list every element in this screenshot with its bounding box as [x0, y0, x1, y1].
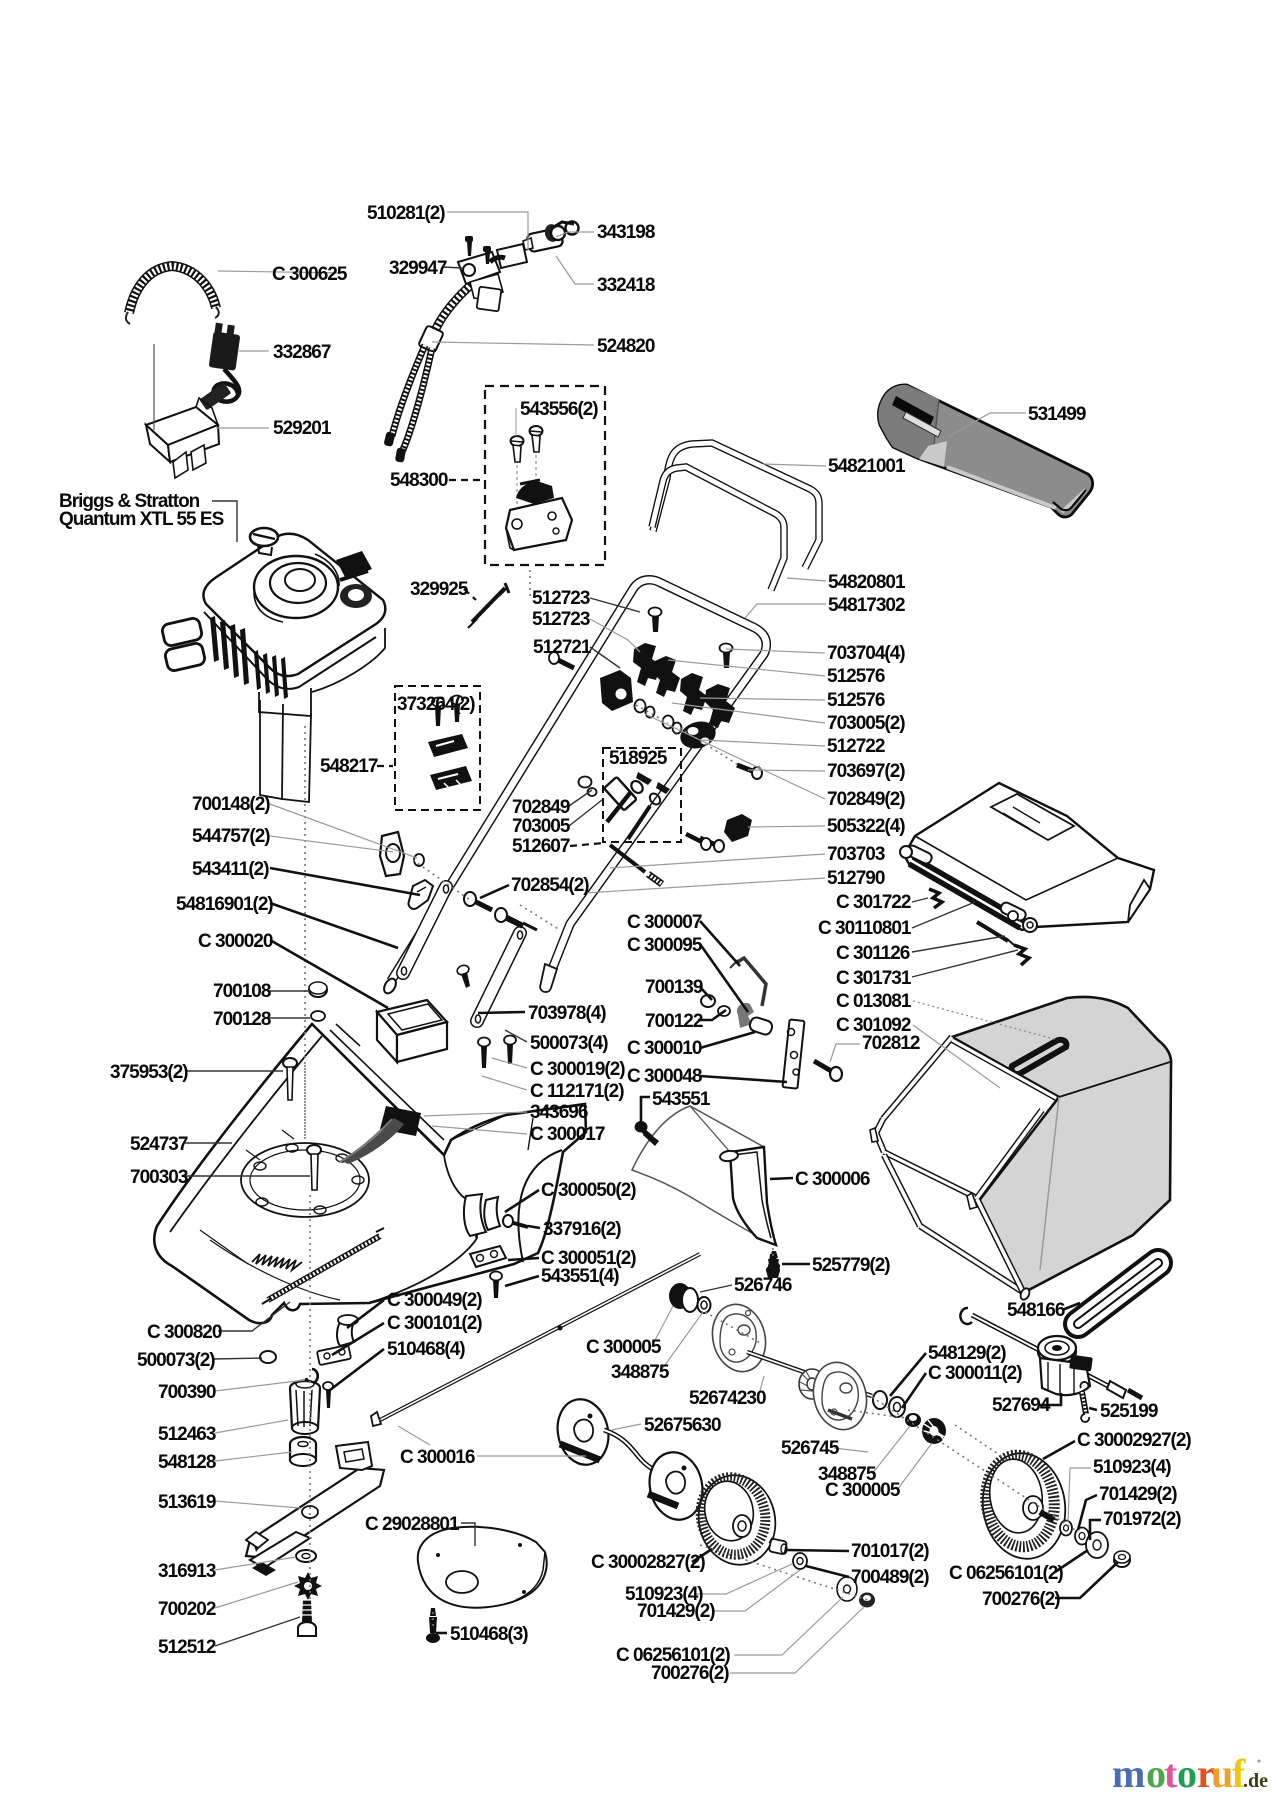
svg-text:524737: 524737 — [130, 1134, 188, 1155]
svg-text:Quantum XTL 55 ES: Quantum XTL 55 ES — [59, 509, 224, 530]
svg-text:o: o — [1146, 1751, 1166, 1796]
svg-text:700390: 700390 — [158, 1382, 216, 1403]
svg-text:375953(2): 375953(2) — [110, 1062, 188, 1083]
svg-text:513619: 513619 — [158, 1492, 216, 1513]
svg-text:548300: 548300 — [390, 470, 448, 491]
svg-text:C 300048: C 300048 — [627, 1066, 702, 1087]
svg-text:700122: 700122 — [645, 1011, 703, 1032]
svg-text:C 300005: C 300005 — [825, 1480, 901, 1501]
svg-text:702854(2): 702854(2) — [511, 875, 589, 896]
svg-text:512607: 512607 — [512, 836, 570, 857]
svg-text:C 013081: C 013081 — [836, 991, 912, 1012]
svg-text:510281(2): 510281(2) — [367, 203, 445, 224]
svg-text:512722: 512722 — [827, 736, 885, 757]
svg-text:510468(4): 510468(4) — [387, 1339, 465, 1360]
svg-text:700303: 700303 — [130, 1167, 188, 1188]
svg-text:C 30002927(2): C 30002927(2) — [1077, 1430, 1191, 1451]
svg-text:C 300049(2): C 300049(2) — [387, 1290, 482, 1311]
svg-text:701972(2): 701972(2) — [1103, 1509, 1181, 1530]
svg-text:703978(4): 703978(4) — [528, 1003, 606, 1024]
svg-text:700489(2): 700489(2) — [851, 1567, 929, 1588]
svg-text:700276(2): 700276(2) — [651, 1663, 729, 1684]
svg-text:702849: 702849 — [512, 797, 570, 818]
svg-text:548166: 548166 — [1007, 1300, 1065, 1321]
svg-text:525199: 525199 — [1100, 1401, 1158, 1422]
svg-text:C 300005: C 300005 — [586, 1337, 662, 1358]
svg-text:C 300007: C 300007 — [627, 912, 702, 933]
svg-text:548128: 548128 — [158, 1452, 216, 1473]
svg-text:C 300101(2): C 300101(2) — [387, 1313, 482, 1334]
svg-text:700276(2): 700276(2) — [982, 1589, 1060, 1610]
svg-text:t: t — [1164, 1751, 1178, 1796]
svg-text:m: m — [1112, 1751, 1145, 1796]
svg-text:512576: 512576 — [827, 666, 885, 687]
svg-text:701429(2): 701429(2) — [637, 1601, 715, 1622]
svg-text:C 300095: C 300095 — [627, 935, 703, 956]
svg-text:C 300006: C 300006 — [795, 1169, 870, 1190]
svg-text:510923(4): 510923(4) — [1093, 1457, 1171, 1478]
svg-text:544757(2): 544757(2) — [192, 826, 270, 847]
svg-text:702812: 702812 — [862, 1033, 920, 1054]
svg-text:700202: 700202 — [158, 1599, 216, 1620]
svg-text:348875: 348875 — [611, 1362, 670, 1383]
svg-text:329947: 329947 — [389, 258, 447, 279]
svg-text:54821001: 54821001 — [828, 456, 906, 477]
svg-text:329925: 329925 — [410, 579, 469, 600]
svg-text:700139: 700139 — [645, 977, 703, 998]
svg-text:703697(2): 703697(2) — [827, 761, 905, 782]
svg-text:373264(2): 373264(2) — [397, 694, 475, 715]
svg-text:54817302: 54817302 — [828, 595, 905, 616]
svg-text:343198: 343198 — [597, 222, 655, 243]
svg-text:C 30002827(2): C 30002827(2) — [591, 1552, 705, 1573]
svg-text:343696: 343696 — [530, 1102, 588, 1123]
svg-text:700128: 700128 — [213, 1009, 271, 1030]
svg-text:337916(2): 337916(2) — [543, 1219, 621, 1240]
svg-text:505322(4): 505322(4) — [827, 816, 905, 837]
svg-text:700108: 700108 — [213, 981, 271, 1002]
svg-text:.de: .de — [1243, 1770, 1268, 1792]
svg-text:548129(2): 548129(2) — [928, 1343, 1006, 1364]
svg-text:52674230: 52674230 — [689, 1388, 766, 1409]
svg-text:C 06256101(2): C 06256101(2) — [949, 1563, 1063, 1584]
svg-text:518925: 518925 — [609, 748, 668, 769]
svg-text:512721: 512721 — [533, 637, 592, 658]
svg-text:500073(2): 500073(2) — [137, 1350, 215, 1371]
svg-text:512723: 512723 — [532, 609, 590, 630]
svg-text:701017(2): 701017(2) — [851, 1541, 929, 1562]
svg-text:543556(2): 543556(2) — [520, 399, 598, 420]
svg-text:C 112171(2): C 112171(2) — [530, 1081, 624, 1102]
svg-text:512790: 512790 — [827, 868, 885, 889]
svg-text:C 300050(2): C 300050(2) — [541, 1180, 636, 1201]
svg-text:C 301731: C 301731 — [836, 968, 912, 989]
svg-text:703005: 703005 — [512, 816, 571, 837]
svg-text:C 29028801: C 29028801 — [365, 1514, 460, 1535]
svg-text:512723: 512723 — [532, 588, 590, 609]
svg-text:701429(2): 701429(2) — [1099, 1484, 1177, 1505]
svg-text:543411(2): 543411(2) — [192, 859, 269, 880]
svg-text:332418: 332418 — [597, 275, 655, 296]
svg-text:C 300016: C 300016 — [400, 1447, 475, 1468]
svg-text:548217: 548217 — [320, 756, 378, 777]
svg-text:531499: 531499 — [1028, 404, 1086, 425]
svg-text:512512: 512512 — [158, 1637, 216, 1658]
svg-text:512576: 512576 — [827, 690, 885, 711]
svg-text:703005(2): 703005(2) — [827, 713, 905, 734]
svg-text:512463: 512463 — [158, 1424, 216, 1445]
svg-text:52675630: 52675630 — [644, 1415, 721, 1436]
svg-text:C 30110801: C 30110801 — [818, 918, 912, 939]
svg-text:C 300820: C 300820 — [147, 1322, 222, 1343]
svg-text:526745: 526745 — [781, 1438, 840, 1459]
svg-text:C 300010: C 300010 — [627, 1038, 702, 1059]
svg-text:702849(2): 702849(2) — [827, 789, 905, 810]
svg-text:C 300625: C 300625 — [272, 264, 348, 285]
svg-text:C 300011(2): C 300011(2) — [928, 1363, 1022, 1384]
svg-text:524820: 524820 — [597, 336, 655, 357]
svg-text:703703: 703703 — [827, 844, 885, 865]
svg-text:C 301126: C 301126 — [836, 943, 910, 964]
svg-text:332867: 332867 — [273, 342, 331, 363]
svg-text:C 300020: C 300020 — [198, 931, 273, 952]
svg-text:543551(4): 543551(4) — [541, 1266, 619, 1287]
svg-text:C 300019(2): C 300019(2) — [530, 1059, 625, 1080]
svg-text:C 300017: C 300017 — [530, 1124, 605, 1145]
svg-text:703704(4): 703704(4) — [827, 643, 905, 664]
svg-text:700148(2): 700148(2) — [192, 794, 270, 815]
svg-text:510468(3): 510468(3) — [450, 1624, 528, 1645]
svg-text:54820801: 54820801 — [828, 572, 906, 593]
svg-text:u: u — [1211, 1751, 1233, 1796]
svg-text:543551: 543551 — [652, 1089, 711, 1110]
svg-text:500073(4): 500073(4) — [530, 1033, 608, 1054]
svg-text:529201: 529201 — [273, 418, 332, 439]
svg-text:54816901(2): 54816901(2) — [176, 894, 273, 915]
svg-text:C 301722: C 301722 — [836, 892, 911, 913]
svg-text:527694: 527694 — [992, 1395, 1051, 1416]
svg-text:526746: 526746 — [734, 1275, 792, 1296]
svg-text:o: o — [1177, 1751, 1197, 1796]
svg-text:525779(2): 525779(2) — [812, 1255, 890, 1276]
svg-text:316913: 316913 — [158, 1561, 216, 1582]
